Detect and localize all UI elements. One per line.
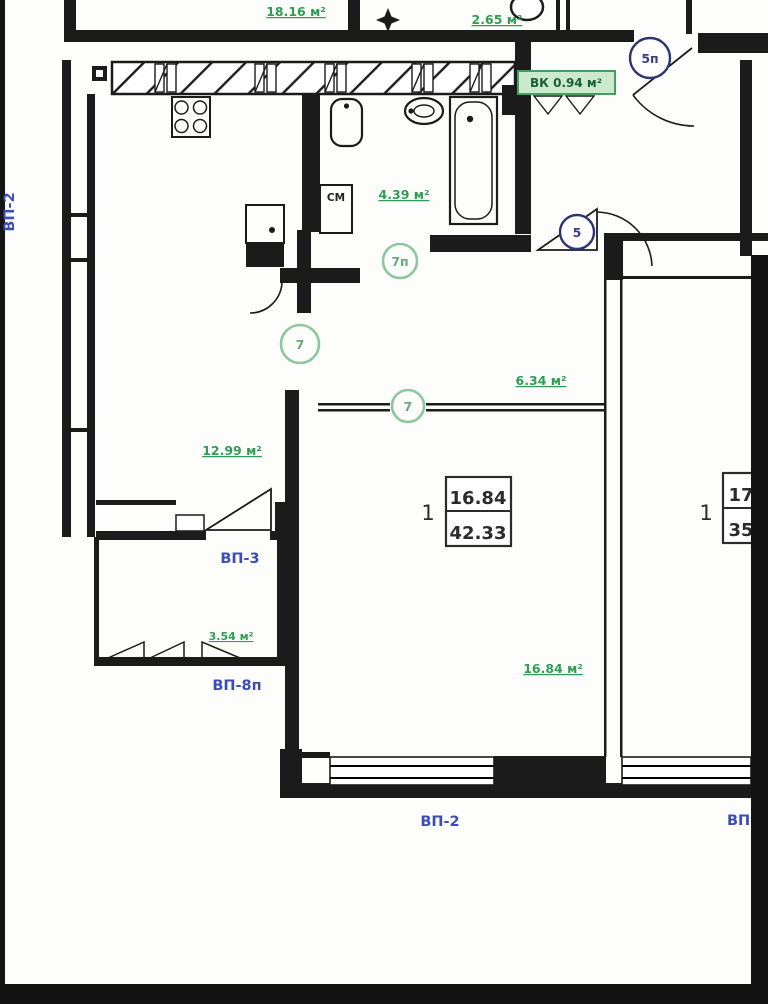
floor-plan-page: СМ ВК 0.94 м² 5п 5 7п 7 7 18.16 м² 2.65 … [0,0,768,1004]
area-label-kitchen: 12.99 м² [202,443,262,458]
wall-segment [302,752,330,758]
kitchen-door-arc [250,281,282,313]
door-marker-5: 5 [573,225,582,240]
wall-segment [698,33,768,53]
balcony-door-leaf [206,489,271,530]
wall-segment [740,60,752,256]
vent-grille-icon [566,96,594,114]
door-markers: 5п 5 7п 7 7 [281,38,670,422]
corner-block-core [96,70,103,77]
wall-segment [277,537,291,666]
window-label-left: ВП-2 [2,192,18,231]
area-label-upper-room: 18.16 м² [266,4,326,19]
window-bottom-right [622,757,751,785]
vent-wall-strip [92,62,515,94]
window-mullion [71,428,87,432]
fridge-icon [246,243,284,267]
wall-segment [604,233,623,280]
window-label-balcony-inner: ВП-3 [220,551,259,567]
wall-segment [430,235,531,252]
wall-segment [623,276,751,279]
balcony-window-leaf [202,642,240,658]
window-sill [96,500,176,505]
balcony-window-leaf [150,642,184,658]
door-arc-5p [633,95,694,126]
unit-living-area: 17 [728,485,753,506]
unit-total-area: 42.33 [450,523,507,544]
hall-opening-lines [318,403,604,412]
window-labels: ВП-2 ВП-3 ВП-8п ВП-2 ВП- [2,192,756,830]
wall-segment [62,60,71,537]
wall-segment [556,0,560,31]
wall-segment [96,531,206,540]
window-mullion [71,213,87,217]
window-label-balcony-outer: ВП-8п [212,678,261,694]
area-label-balcony: 3.54 м² [209,630,254,643]
wall-segment [280,268,360,283]
unit-tag-left: 1 16.84 42.33 [421,477,511,546]
unit-rooms-count: 1 [699,501,712,525]
frame-right-band-overlay [751,255,768,1004]
walls-upper-unit [64,0,768,256]
wall-segment [604,280,607,757]
door-threshold [176,515,204,531]
window-bottom-center [330,757,494,785]
area-label-living: 16.84 м² [523,661,583,676]
vent-grille-icon [534,96,562,114]
wall-segment [566,0,570,31]
frame-bottom-bar [0,984,768,1004]
door-marker-5p: 5п [641,51,658,66]
kitchen-fixtures [172,97,284,313]
wall-segment [502,85,518,115]
unit-total-area: 35 [728,520,753,541]
vent-chamber-label: ВК 0.94 м² [530,76,602,90]
washing-machine-label: СМ [327,192,345,204]
bathtub-icon [450,97,497,224]
door-marker-7-kitchen: 7 [296,337,305,352]
wall-segment [87,94,95,537]
wall-segment [620,280,623,757]
door-marker-7-living: 7 [404,399,413,414]
wall-segment [686,0,692,34]
floor-plan-svg: СМ ВК 0.94 м² 5п 5 7п 7 7 18.16 м² 2.65 … [0,0,768,1004]
wall-segment [494,756,606,786]
frame-left-edge [0,0,5,1004]
wall-segment [515,33,531,234]
wall-segment [280,749,302,798]
bottom-wall [280,749,752,798]
balcony-window-leaf [108,642,144,658]
area-label-hallway: 6.34 м² [516,373,567,388]
wall-segment [302,94,320,232]
vent-chamber: ВК 0.94 м² [518,71,615,114]
window-label-bottom-center: ВП-2 [420,814,459,830]
bathroom-fixtures [320,97,497,233]
lamp-star-icon [376,8,400,32]
window-mullion [71,258,87,262]
wall-segment [275,502,291,540]
door-marker-7p: 7п [391,254,408,269]
area-label-upper-small: 2.65 м² [472,12,523,27]
kitchen-sink-icon [246,205,284,243]
unit-rooms-count: 1 [421,501,434,525]
unit-living-area: 16.84 [450,488,507,509]
area-label-bathroom: 4.39 м² [379,187,430,202]
wall-segment [605,233,768,241]
wall-segment [94,537,99,663]
wall-segment [348,0,360,34]
